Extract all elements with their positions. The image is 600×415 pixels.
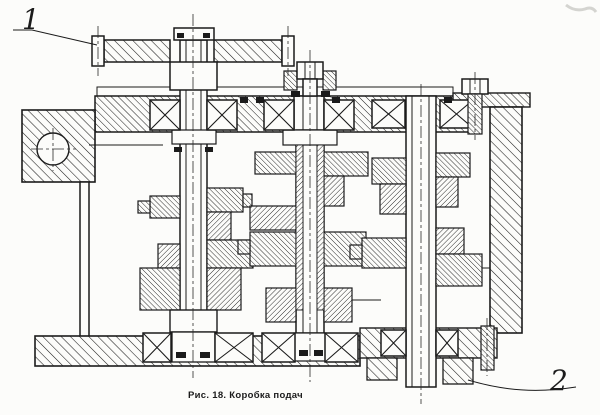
- bearing-symbol: [262, 333, 295, 362]
- bearing-symbol: [150, 100, 180, 130]
- input-shaft-sleeve: [170, 310, 217, 332]
- bearing-symbol: [207, 100, 237, 130]
- lever-arm-left: [104, 40, 170, 62]
- intermediate-shaft-opening: [294, 96, 324, 132]
- bearing-symbol: [264, 100, 294, 130]
- figure-caption: Рис. 18. Коробка подач: [188, 390, 303, 401]
- bearing-symbol: [215, 333, 253, 362]
- lever-hub-sleeve: [170, 62, 217, 90]
- bearing-symbol: [324, 100, 354, 130]
- bearing-symbol: [381, 330, 406, 356]
- bearing-symbol: [436, 330, 458, 356]
- bearing-symbol: [325, 333, 358, 362]
- bottom-flange-left: [367, 358, 397, 380]
- right-wall: [490, 107, 522, 333]
- bearing-symbol: [143, 333, 171, 362]
- bearing-symbol: [372, 100, 405, 128]
- sleeve-wall-right: [317, 145, 324, 310]
- gearbox-cross-section-drawing: 1 2 Рис. 18. Коробка подач: [0, 0, 600, 415]
- callout-1-label: 1: [22, 3, 40, 36]
- scanned-figure-page: 1 2 Рис. 18. Коробка подач: [0, 0, 600, 415]
- callout-2-label: 2: [549, 364, 568, 397]
- lever-arm-right: [214, 40, 282, 62]
- input-shaft-collar: [172, 130, 216, 144]
- left-wall: [80, 182, 89, 337]
- bolt-flange-right: [323, 71, 336, 90]
- sleeve-wall-left: [296, 145, 303, 310]
- bolt-flange-left: [284, 71, 297, 90]
- stud-bolt: [481, 326, 494, 370]
